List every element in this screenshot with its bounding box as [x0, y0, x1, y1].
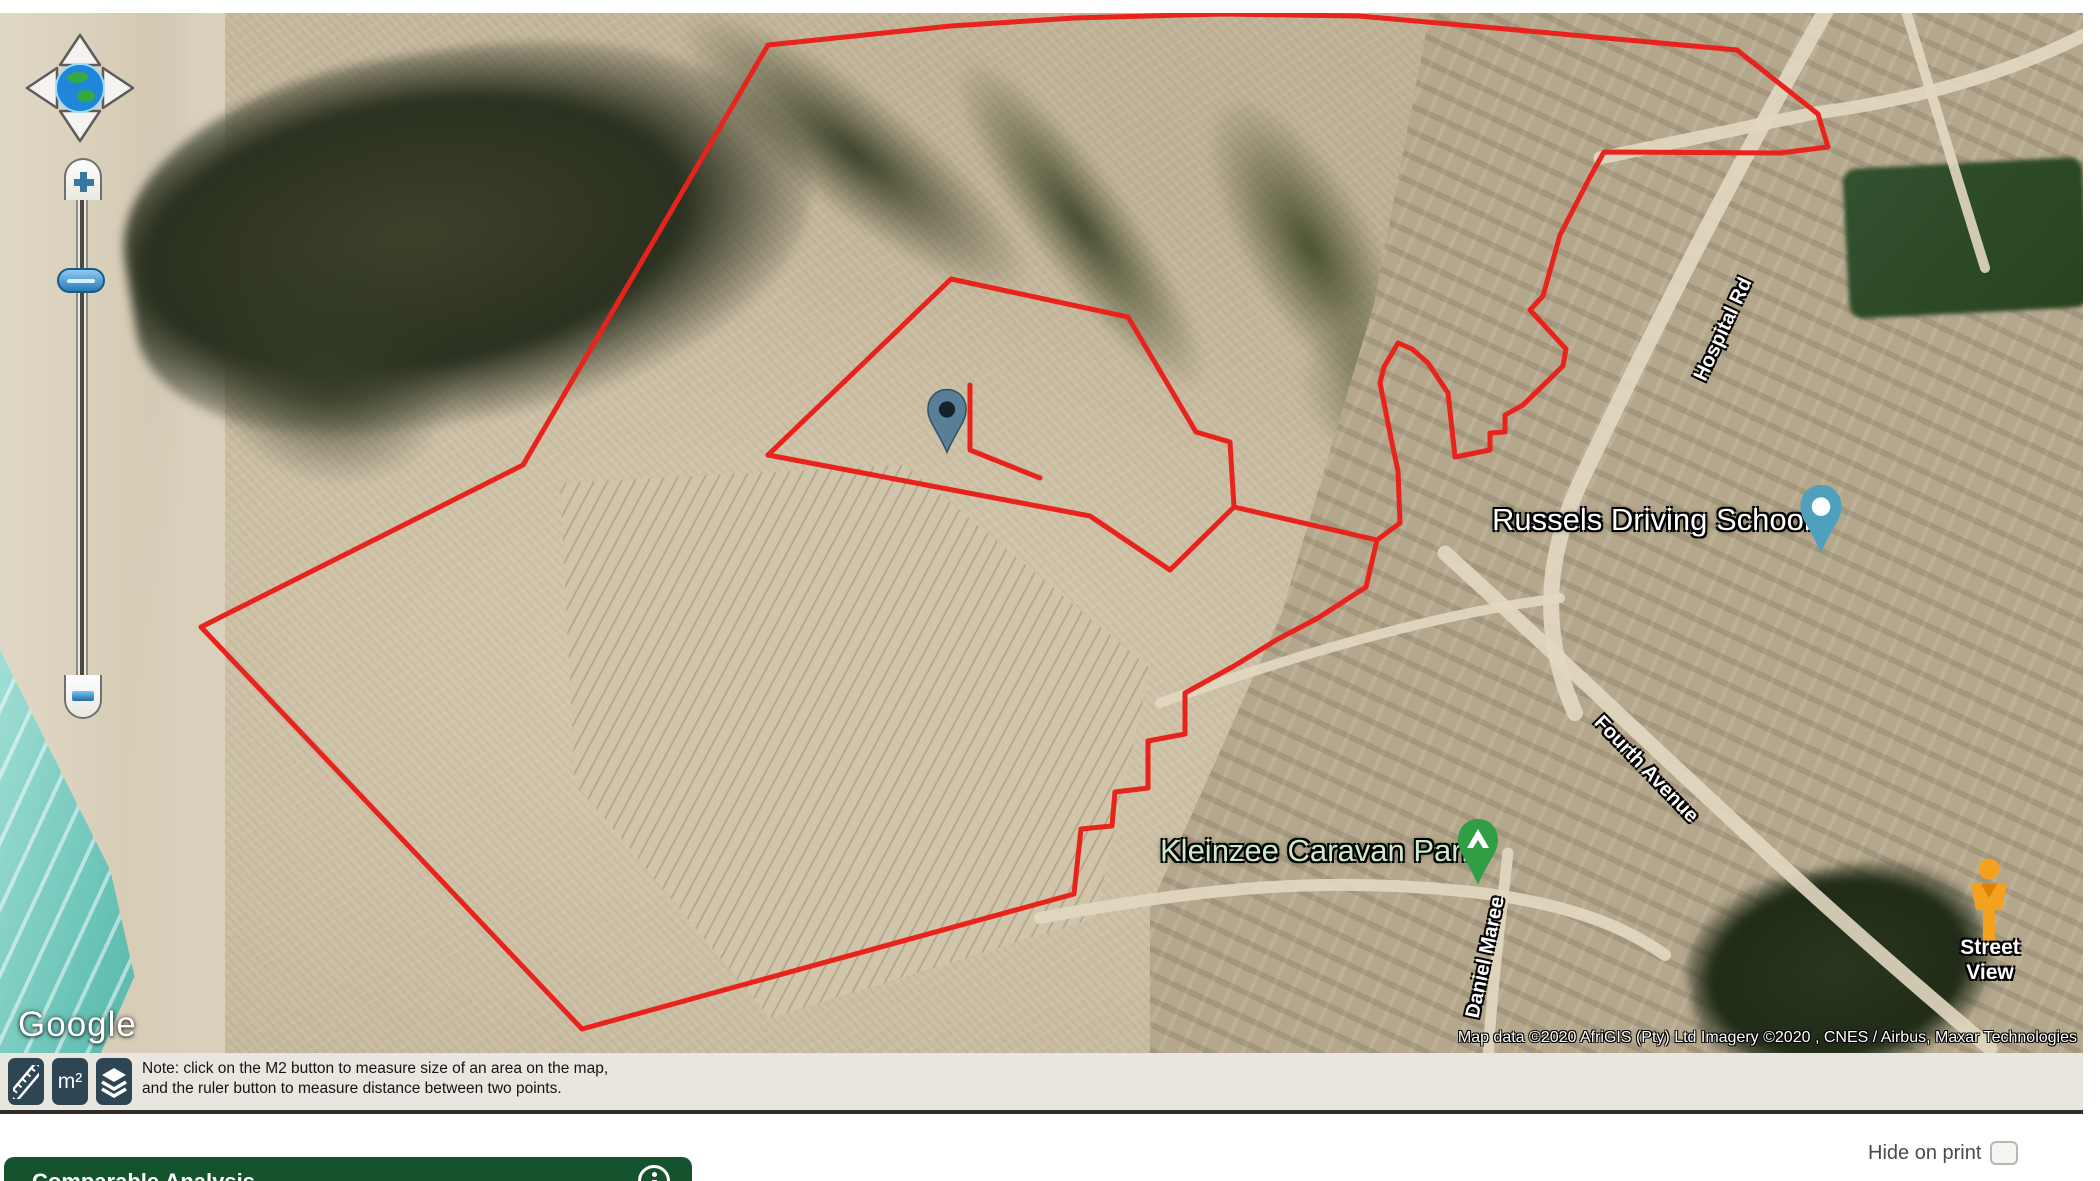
pan-up-icon: [60, 35, 100, 65]
comparable-analysis-header: Comparable Analysis: [4, 1157, 692, 1181]
boundary-inner-c: [970, 385, 1040, 478]
map-canvas[interactable]: Russels Driving School Kleinzee Caravan …: [0, 13, 2083, 1053]
map-toolbar: m² Note: click on the M2 button to measu…: [0, 1053, 2083, 1111]
measure-distance-button[interactable]: [8, 1058, 44, 1105]
property-map-pin-icon[interactable]: [926, 386, 968, 456]
measure-area-button[interactable]: m²: [52, 1058, 88, 1105]
compass-pan-control[interactable]: [24, 32, 136, 144]
poi-label-driving-school: Russels Driving School: [1492, 502, 1811, 538]
zoom-out-button[interactable]: [64, 675, 102, 719]
map-attribution: Map data ©2020 AfriGIS (Pty) Ltd Imagery…: [1458, 1029, 2077, 1047]
google-logo[interactable]: Google: [18, 1005, 137, 1045]
toolbar-note-line1: Note: click on the M2 button to measure …: [142, 1059, 608, 1079]
m2-icon: m²: [58, 1070, 83, 1094]
layers-icon: [100, 1066, 128, 1098]
hide-on-print-label: Hide on print: [1868, 1142, 1981, 1165]
zoom-in-button[interactable]: [64, 158, 102, 200]
section-title: Comparable Analysis: [32, 1169, 255, 1181]
poi-label-caravan-park: Kleinzee Caravan Park: [1160, 833, 1477, 869]
pan-down-icon: [60, 111, 100, 141]
toolbar-note: Note: click on the M2 button to measure …: [142, 1059, 608, 1099]
driving-school-pin-icon[interactable]: [1798, 483, 1844, 555]
section-divider: [0, 1110, 2083, 1114]
boundary-inner-b: [768, 455, 1234, 570]
boundary-inner-a: [768, 279, 1377, 540]
info-icon[interactable]: [638, 1165, 670, 1181]
pan-left-icon: [27, 68, 57, 108]
zoom-slider-handle[interactable]: [57, 268, 105, 293]
hide-on-print-control: Hide on print: [1868, 1141, 2018, 1165]
caravan-park-pin-icon[interactable]: [1456, 816, 1500, 888]
layers-button[interactable]: [96, 1058, 132, 1105]
hide-on-print-checkbox[interactable]: [1990, 1141, 2018, 1165]
toolbar-note-line2: and the ruler button to measure distance…: [142, 1079, 608, 1099]
street-view-label: Street View: [1944, 935, 2036, 985]
ruler-icon: [13, 1065, 39, 1099]
pan-right-icon: [103, 68, 133, 108]
